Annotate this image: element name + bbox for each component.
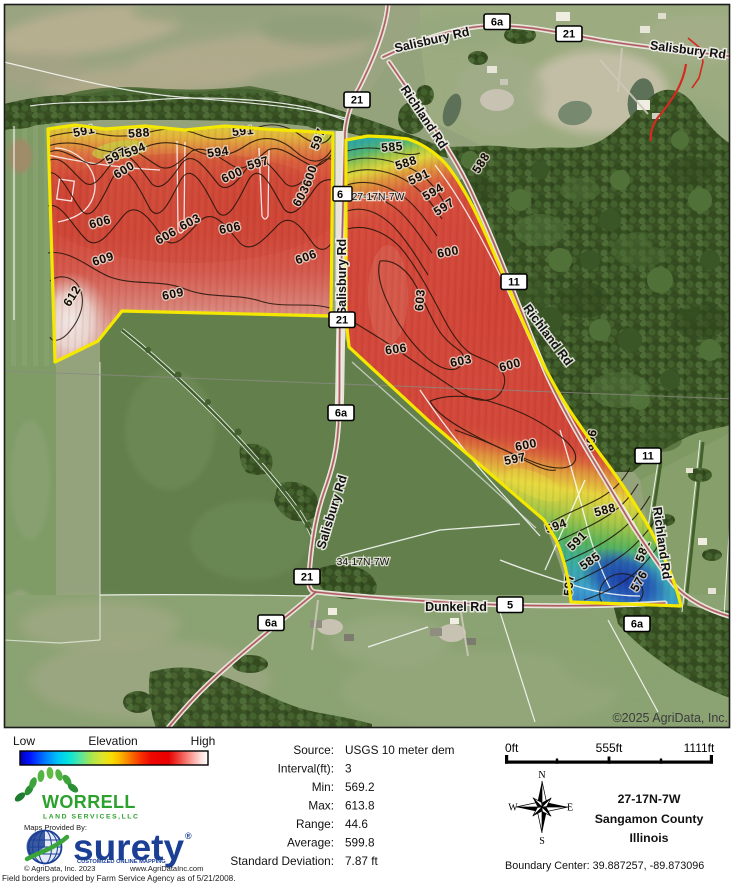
svg-text:Salisbury Rd: Salisbury Rd <box>335 239 349 315</box>
svg-text:Min:: Min: <box>312 780 334 794</box>
svg-text:Sangamon County: Sangamon County <box>595 812 704 826</box>
svg-text:585: 585 <box>381 139 404 155</box>
svg-text:27-17N-7W: 27-17N-7W <box>352 192 405 203</box>
svg-text:Max:: Max: <box>308 799 334 813</box>
svg-text:34-17N-7W: 34-17N-7W <box>337 557 390 568</box>
svg-text:3: 3 <box>345 762 352 776</box>
svg-text:Dunkel Rd: Dunkel Rd <box>425 600 487 614</box>
svg-text:Illinois: Illinois <box>630 831 669 845</box>
svg-text:Low: Low <box>13 734 35 748</box>
svg-text:27-17N-7W: 27-17N-7W <box>618 792 681 806</box>
svg-text:603: 603 <box>412 289 428 312</box>
svg-text:21: 21 <box>563 29 575 41</box>
svg-text:S: S <box>539 836 545 847</box>
svg-text:1111ft: 1111ft <box>684 741 715 755</box>
svg-text:Average:: Average: <box>287 836 334 850</box>
svg-text:555ft: 555ft <box>596 741 623 755</box>
svg-text:E: E <box>567 803 573 814</box>
svg-text:6a: 6a <box>335 408 348 420</box>
svg-text:www.AgriDataInc.com: www.AgriDataInc.com <box>129 864 203 873</box>
svg-text:21: 21 <box>351 95 363 107</box>
svg-text:High: High <box>191 734 216 748</box>
svg-text:599.8: 599.8 <box>345 836 375 850</box>
svg-text:Field borders provided by Farm: Field borders provided by Farm Service A… <box>2 874 235 883</box>
svg-text:W: W <box>508 803 518 814</box>
svg-text:11: 11 <box>642 451 654 463</box>
svg-text:Interval(ft):: Interval(ft): <box>278 762 334 776</box>
svg-text:6a: 6a <box>491 17 504 29</box>
svg-text:21: 21 <box>301 572 313 584</box>
svg-text:21: 21 <box>336 315 348 327</box>
svg-text:613.8: 613.8 <box>345 799 375 813</box>
svg-text:6a: 6a <box>265 618 278 630</box>
svg-text:Standard Deviation:: Standard Deviation: <box>230 854 334 868</box>
svg-text:11: 11 <box>508 277 520 289</box>
svg-text:6a: 6a <box>631 619 644 631</box>
svg-text:6: 6 <box>337 189 343 201</box>
svg-text:®: ® <box>185 831 192 841</box>
svg-text:Elevation: Elevation <box>88 734 137 748</box>
svg-text:Source:: Source: <box>293 743 334 757</box>
svg-text:LAND SERVICES,LLC: LAND SERVICES,LLC <box>43 814 139 821</box>
svg-text:©2025 AgriData, Inc.: ©2025 AgriData, Inc. <box>612 711 728 725</box>
svg-text:5: 5 <box>507 600 513 612</box>
svg-text:44.6: 44.6 <box>345 817 368 831</box>
svg-text:N: N <box>538 770 545 781</box>
svg-text:7.87 ft: 7.87 ft <box>345 854 379 868</box>
svg-text:0ft: 0ft <box>505 741 519 755</box>
svg-text:Range:: Range: <box>296 817 334 831</box>
svg-text:569.2: 569.2 <box>345 780 375 794</box>
svg-text:© AgriData, Inc. 2023: © AgriData, Inc. 2023 <box>24 864 95 873</box>
svg-text:WORRELL: WORRELL <box>42 792 136 812</box>
svg-text:Boundary Center: 39.887257, -8: Boundary Center: 39.887257, -89.873096 <box>505 860 704 872</box>
svg-text:USGS 10 meter dem: USGS 10 meter dem <box>345 743 455 757</box>
